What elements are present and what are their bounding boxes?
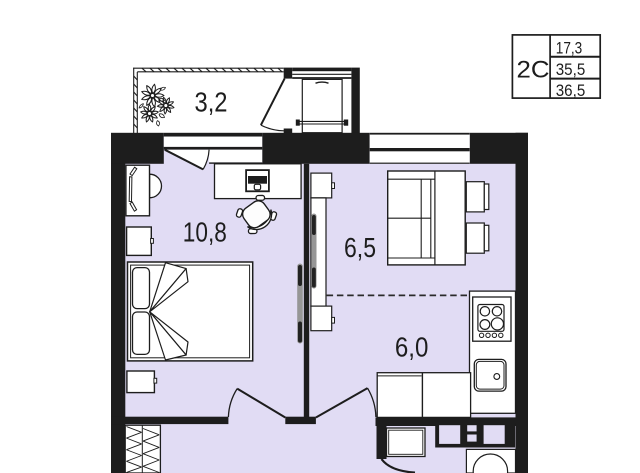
svg-text:17,3: 17,3 (556, 38, 583, 57)
svg-text:6,5: 6,5 (344, 232, 376, 263)
svg-text:10,8: 10,8 (183, 217, 227, 248)
svg-text:3,2: 3,2 (195, 87, 228, 118)
svg-text:2С: 2С (517, 57, 550, 84)
svg-text:35,5: 35,5 (556, 60, 586, 79)
svg-text:6,0: 6,0 (395, 332, 429, 363)
svg-text:36,5: 36,5 (556, 81, 586, 100)
